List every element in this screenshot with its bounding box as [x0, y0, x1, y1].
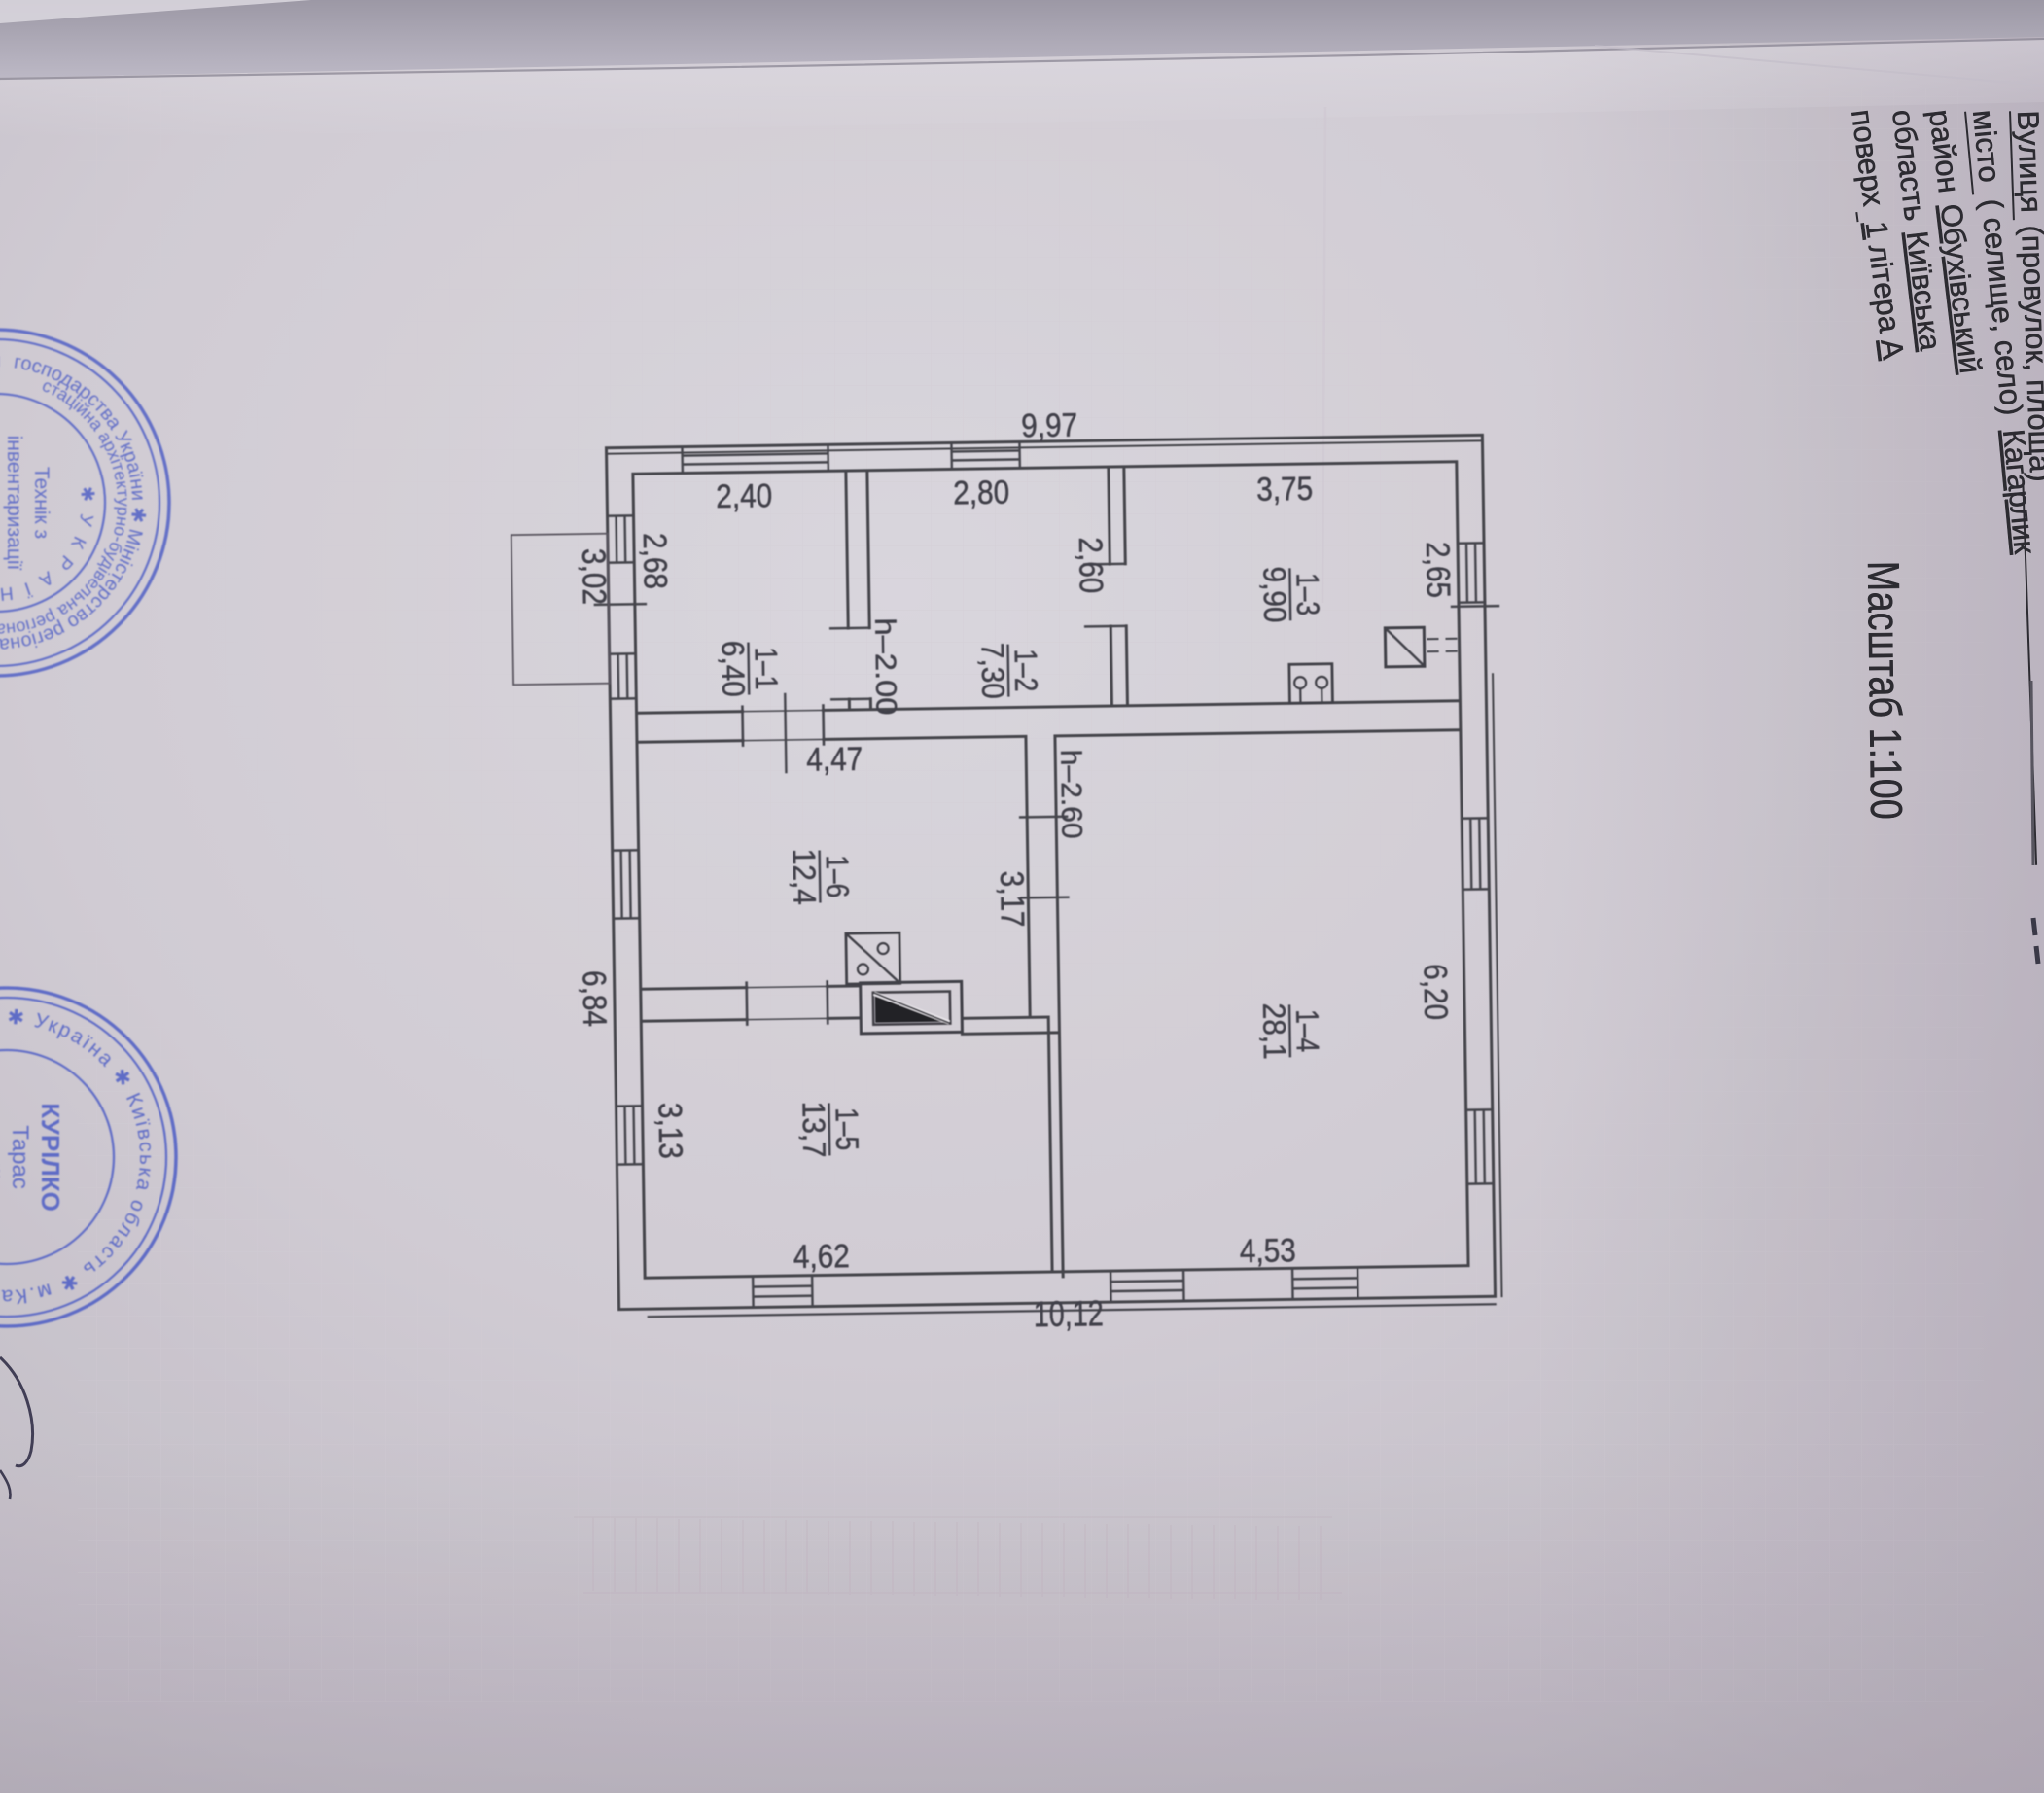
svg-text:4,47: 4,47: [806, 741, 863, 779]
svg-text:1–4: 1–4: [1289, 1009, 1325, 1053]
svg-text:3,02: 3,02: [575, 548, 613, 606]
svg-text:6,40: 6,40: [715, 641, 751, 698]
svg-text:КУРІЛКО: КУРІЛКО: [36, 1103, 65, 1212]
svg-text:3,13: 3,13: [651, 1103, 688, 1160]
svg-text:2,65: 2,65: [1419, 542, 1457, 599]
svg-text:Феодосійович: Феодосійович: [0, 1088, 3, 1226]
svg-text:7,30: 7,30: [974, 643, 1010, 700]
svg-text:h–2.00: h–2.00: [868, 617, 901, 715]
svg-text:2,68: 2,68: [636, 533, 674, 590]
svg-text:28,1: 28,1: [1256, 1002, 1292, 1060]
svg-text:1–6: 1–6: [820, 855, 856, 898]
svg-text:1–3: 1–3: [1289, 573, 1325, 616]
svg-text:2,80: 2,80: [953, 475, 1010, 512]
svg-text:2,40: 2,40: [716, 477, 773, 515]
svg-text:12,4: 12,4: [787, 848, 823, 905]
svg-text:3,75: 3,75: [1256, 471, 1314, 509]
svg-text:4,62: 4,62: [793, 1238, 851, 1276]
svg-text:6,84: 6,84: [575, 970, 613, 1028]
svg-text:1–5: 1–5: [829, 1107, 865, 1151]
svg-text:2,60: 2,60: [1072, 537, 1110, 594]
svg-text:місто: місто: [1966, 108, 2007, 184]
svg-text:Тарас: Тарас: [7, 1125, 33, 1189]
svg-text:3,17: 3,17: [993, 870, 1031, 928]
svg-text:1–1: 1–1: [749, 647, 785, 690]
svg-text:Масштаб 1:100: Масштаб 1:100: [1858, 560, 1912, 820]
svg-text:Технік з: Технік з: [30, 467, 53, 539]
svg-text:1–2: 1–2: [1008, 649, 1044, 692]
svg-text:9,90: 9,90: [1256, 566, 1292, 623]
svg-text:13,7: 13,7: [795, 1101, 831, 1158]
svg-text:6,20: 6,20: [1416, 964, 1454, 1021]
svg-text:h–2.60: h–2.60: [1054, 749, 1087, 838]
svg-text:9,97: 9,97: [1021, 407, 1078, 445]
svg-text:Вулиця: Вулиця: [2011, 110, 2044, 213]
svg-text:4,53: 4,53: [1240, 1232, 1297, 1270]
svg-text:інвентаризації: інвентаризації: [3, 436, 25, 571]
svg-text:10,12: 10,12: [1033, 1293, 1104, 1334]
